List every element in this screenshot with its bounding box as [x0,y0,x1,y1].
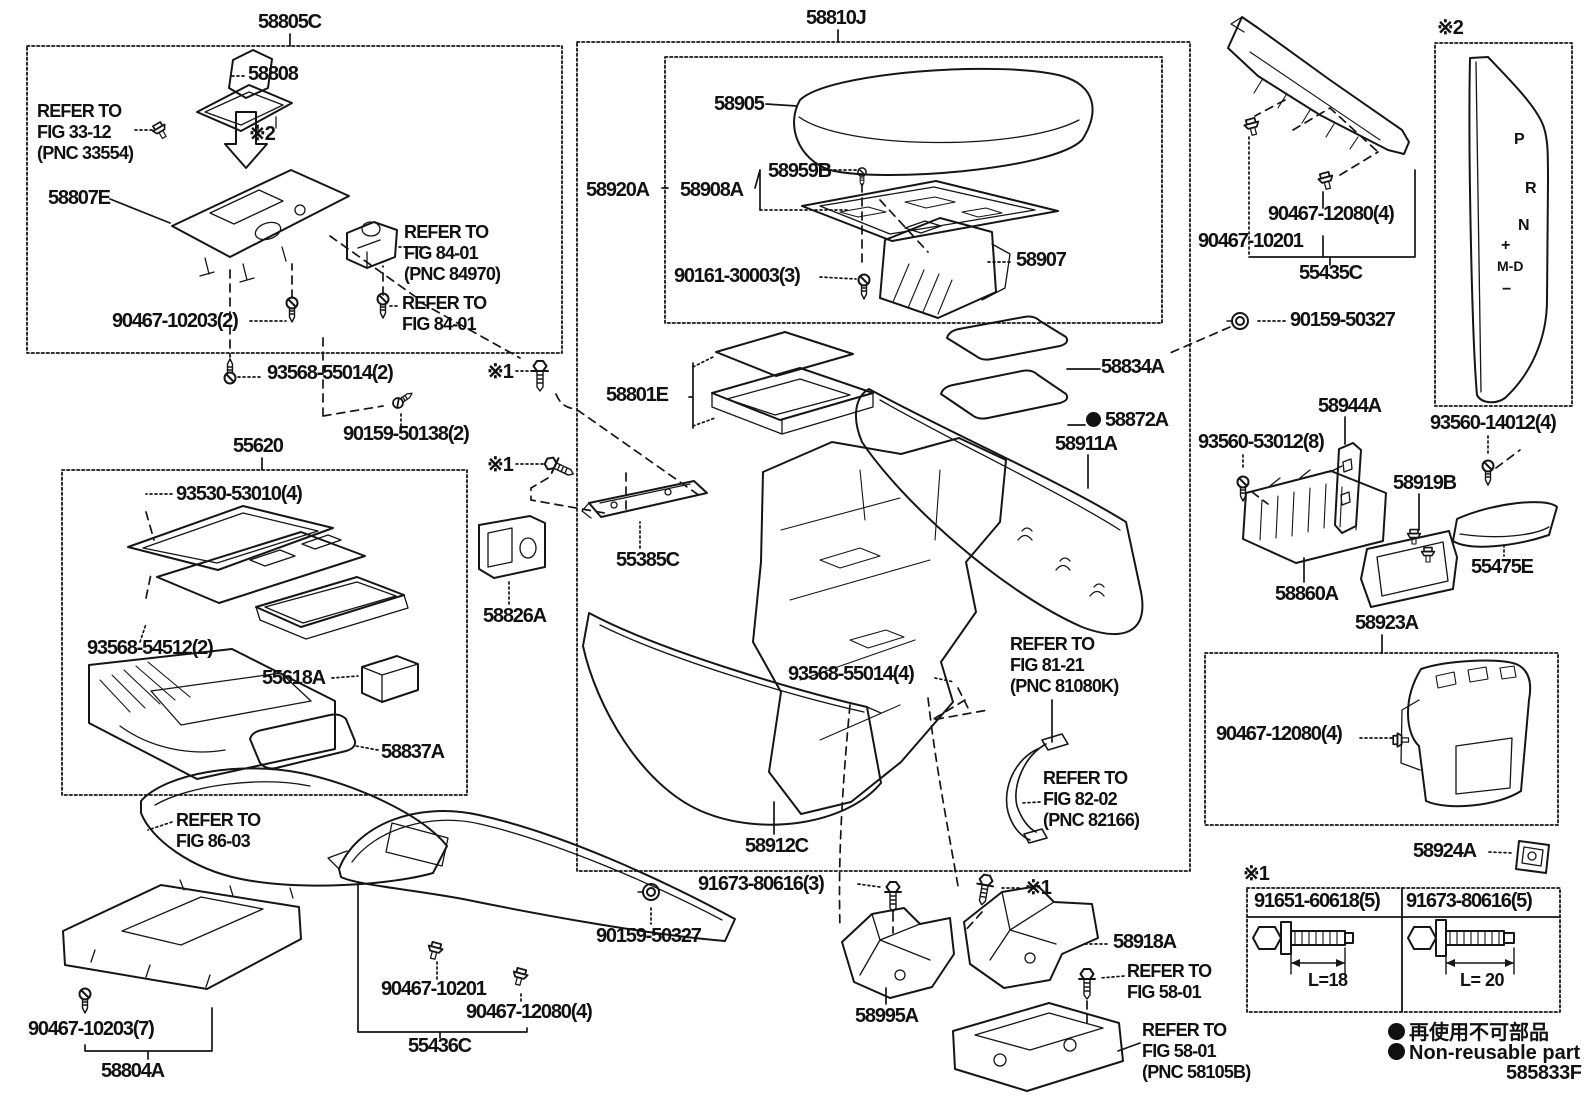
note1-upper: ※1 [487,362,513,382]
table-col1-length: L=18 [1308,970,1348,991]
non-reusable-dot-icon [1086,412,1101,427]
label-90467-10203-2: 90467-10203(2) [112,311,238,331]
part-58807E-console-plate [172,170,349,282]
part-fig84-01-switch [347,222,397,268]
label-58924A: 58924A [1413,841,1476,861]
label-58804A: 58804A [101,1061,164,1081]
legend-ja: 再使用不可部品 [1388,1016,1549,1045]
screw-93560-14012-icon [1483,461,1494,486]
label-93568-55014-4: 93568-55014(4) [788,664,914,684]
label-58923A: 58923A [1355,613,1418,633]
clip-fig33-12-icon [151,121,170,141]
ref-fig86-03: REFER TOFIG 86-03 [176,810,260,852]
label-58801E: 58801E [606,385,668,405]
clip-90467-10201-top-icon [1317,171,1335,190]
screw-fig84-01-icon [378,294,389,319]
screw-90467-10203-icon [287,298,298,323]
figure-code: 585833F [1506,1062,1581,1085]
box-gear-indicator [1435,43,1572,406]
part-58860A-register [1243,466,1386,563]
clip-90467-10201-btm-icon [426,941,444,960]
clip-90467-12080-btm-icon [511,967,529,986]
part-58995A-bracket [842,908,954,998]
ref-fig81-21: REFER TOFIG 81-21(PNC 81080K) [1010,634,1118,697]
screw-90159-50138-icon [391,389,415,410]
label-93560-53012-8: 93560-53012(8) [1198,432,1324,452]
label-58860A: 58860A [1275,584,1338,604]
ref-fig58-01b: REFER TOFIG 58-01(PNC 58105B) [1142,1020,1250,1083]
label-58805C: 58805C [258,12,321,32]
bolt-fig58-01-icon [1079,969,1095,999]
note2-panel: ※2 [1437,18,1463,38]
label-93568-54512-2: 93568-54512(2) [87,638,213,658]
note1-lower: ※1 [487,455,513,475]
part-console-body [753,438,1006,814]
part-55435C-trim [1228,17,1409,154]
label-55435C: 55435C [1299,263,1362,283]
label-58908A: 58908A [680,180,743,200]
label-90467-12080-4-box: 90467-12080(4) [1216,724,1342,744]
gear-letter-n: N [1518,218,1530,234]
label-91673-80616-3: 91673-80616(3) [698,874,824,894]
part-58801E-trays [712,332,873,434]
screw-93560-53012-icon [1238,477,1249,502]
ref-fig33-12: REFER TOFIG 33-12(PNC 33554) [37,101,133,164]
part-55475E-strip [1453,502,1557,547]
label-90467-12080-4-btm: 90467-12080(4) [466,1002,592,1022]
part-58826A-switch [479,516,545,578]
part-58837A-mat [250,715,355,769]
label-58912C: 58912C [745,836,808,856]
note1-bottom: ※1 [1025,878,1051,898]
part-55618A-block [362,656,418,702]
non-reusable-dot-icon [1388,1023,1405,1040]
label-58907: 58907 [1016,250,1066,270]
label-90159-50327-top: 90159-50327 [1290,310,1395,330]
label-55385C: 55385C [616,550,679,570]
part-58924A-clip [1516,841,1549,873]
parts-diagram-console-box: 58805C 58808 REFER TOFIG 33-12(PNC 33554… [0,0,1592,1099]
label-93568-55014-2: 93568-55014(2) [267,363,393,383]
ref-fig84-01a: REFER TOFIG 84-01(PNC 84970) [404,222,500,285]
gear-letter-p: P [1514,132,1525,148]
bolt-91673-80616-3-icon [885,882,901,912]
note1-table: ※1 [1243,864,1269,884]
label-58918A: 58918A [1113,932,1176,952]
label-58919B: 58919B [1393,473,1456,493]
label-90159-50138-2: 90159-50138(2) [343,424,469,444]
label-58807E: 58807E [48,188,110,208]
label-58808: 58808 [248,64,298,84]
label-58872A: 58872A [1086,410,1168,430]
label-93560-14012-4: 93560-14012(4) [1430,413,1556,433]
part-58872A-mat [941,371,1067,419]
label-58834A: 58834A [1101,357,1164,377]
table-col1-part: 91651-60618(5) [1254,891,1380,911]
label-58911A: 58911A [1055,434,1117,454]
part-58905-armrest-lid [794,69,1092,175]
grommet-90159-50327-btm-icon [638,884,659,900]
label-58905: 58905 [714,94,764,114]
label-55620: 55620 [233,436,283,456]
screw-93568-55014-icon [225,359,236,384]
part-55436C-trim [328,811,735,941]
label-90161-30003-3: 90161-30003(3) [674,266,800,286]
label-90467-10201-btm: 90467-10201 [381,979,486,999]
label-90467-12080-4-top: 90467-12080(4) [1268,204,1394,224]
gear-letter-md: M-D [1497,259,1523,273]
note2-arrow: ※2 [249,124,275,144]
label-58944A: 58944A [1318,396,1381,416]
part-58923A-rear-panel [1401,661,1530,807]
ref-fig82-02: REFER TOFIG 82-02(PNC 82166) [1043,768,1139,831]
gear-letter-r: R [1525,181,1537,197]
label-58920A: 58920A [586,180,649,200]
label-90467-10201-top: 90467-10201 [1198,231,1303,251]
gear-letter-minus: − [1502,282,1511,298]
table-col2-part: 91673-80616(5) [1406,891,1532,911]
label-90467-10203-7: 90467-10203(7) [28,1019,154,1039]
part-58918A-bracket [964,886,1098,988]
table-bolt-drawings [1253,920,1514,974]
box-58810J [577,42,1190,871]
ref-fig84-01b: REFER TOFIG 84-01 [402,293,486,335]
label-90159-50327-btm: 90159-50327 [596,926,701,946]
label-58995A: 58995A [855,1006,918,1026]
part-58912C-side-panel [583,613,881,825]
part-fig58-01-baseplate [953,1003,1123,1091]
label-93530-53010-4: 93530-53010(4) [176,484,302,504]
label-55436C: 55436C [408,1036,471,1056]
gear-letter-plus: + [1501,238,1510,254]
bolt-note1-upper-icon [532,361,548,391]
part-58908A-hinge [802,181,1058,241]
part-gear-indicator-blade [1469,57,1548,402]
label-58837A: 58837A [381,742,444,762]
label-55618A: 55618A [262,668,325,688]
label-58826A: 58826A [483,606,546,626]
non-reusable-dot-icon [1388,1043,1405,1060]
table-col2-length: L= 20 [1460,970,1504,991]
label-55475E: 55475E [1471,557,1533,577]
label-58959B: 58959B [768,161,831,181]
clip-90467-12080-top-icon [1243,117,1261,136]
label-58810J: 58810J [806,8,866,28]
part-58804A-plate [63,885,301,989]
screw-90161-30003-icon [859,275,870,300]
screw-90467-10203-7-icon [80,989,91,1014]
ref-fig58-01a: REFER TOFIG 58-01 [1127,961,1211,1003]
